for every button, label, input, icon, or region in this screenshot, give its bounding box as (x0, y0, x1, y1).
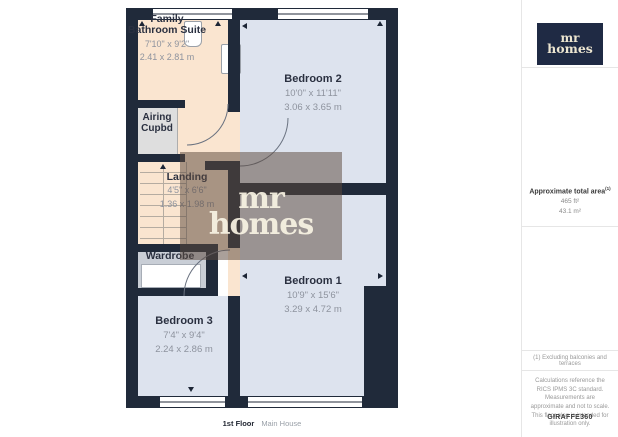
total-area-section: Approximate total area(1) 465 ft² 43.1 m… (522, 186, 618, 215)
floor-plan: Family Bathroom Suite 7'10" x 9'2" 2.41 … (0, 0, 520, 437)
logo-text-homes: homes (547, 43, 593, 56)
total-area-m: 43.1 m² (522, 208, 618, 215)
total-area-heading-text: Approximate total area (529, 188, 605, 195)
dimension-arrow (139, 21, 145, 26)
footnote-marker: (1) (605, 186, 611, 191)
dimension-arrow (377, 21, 383, 26)
dimension-arrow (242, 273, 247, 279)
total-area-heading: Approximate total area(1) (522, 186, 618, 195)
sidebar-divider (522, 350, 618, 351)
floorplan-page: Family Bathroom Suite 7'10" x 9'2" 2.41 … (0, 0, 618, 437)
sidebar-divider (522, 370, 618, 371)
disclaimer-text: Calculations reference the RICS IPMS 3C … (528, 377, 612, 429)
watermark-text-homes: homes (209, 211, 314, 240)
floor-name: 1st Floor (223, 419, 255, 428)
dimension-arrow (242, 23, 247, 29)
brand-watermark: mr homes (180, 152, 342, 260)
dimension-arrow (188, 387, 194, 392)
sidebar-divider (522, 226, 618, 227)
plan-caption: 1st Floor Main House (126, 419, 398, 428)
dimension-arrow (378, 273, 383, 279)
giraffe360-brand: GIRAFFE360 (522, 414, 618, 421)
area-footnote: (1) Excluding balconies and terraces (522, 355, 618, 367)
dimension-arrow (215, 21, 221, 26)
sidebar-divider (522, 67, 618, 68)
total-area-ft: 465 ft² (522, 198, 618, 205)
mr-homes-logo: mr homes (537, 23, 603, 65)
bathroom-door-arc (187, 104, 228, 145)
building-name: Main House (261, 419, 301, 428)
info-sidebar: mr homes Approximate total area(1) 465 f… (521, 0, 618, 437)
